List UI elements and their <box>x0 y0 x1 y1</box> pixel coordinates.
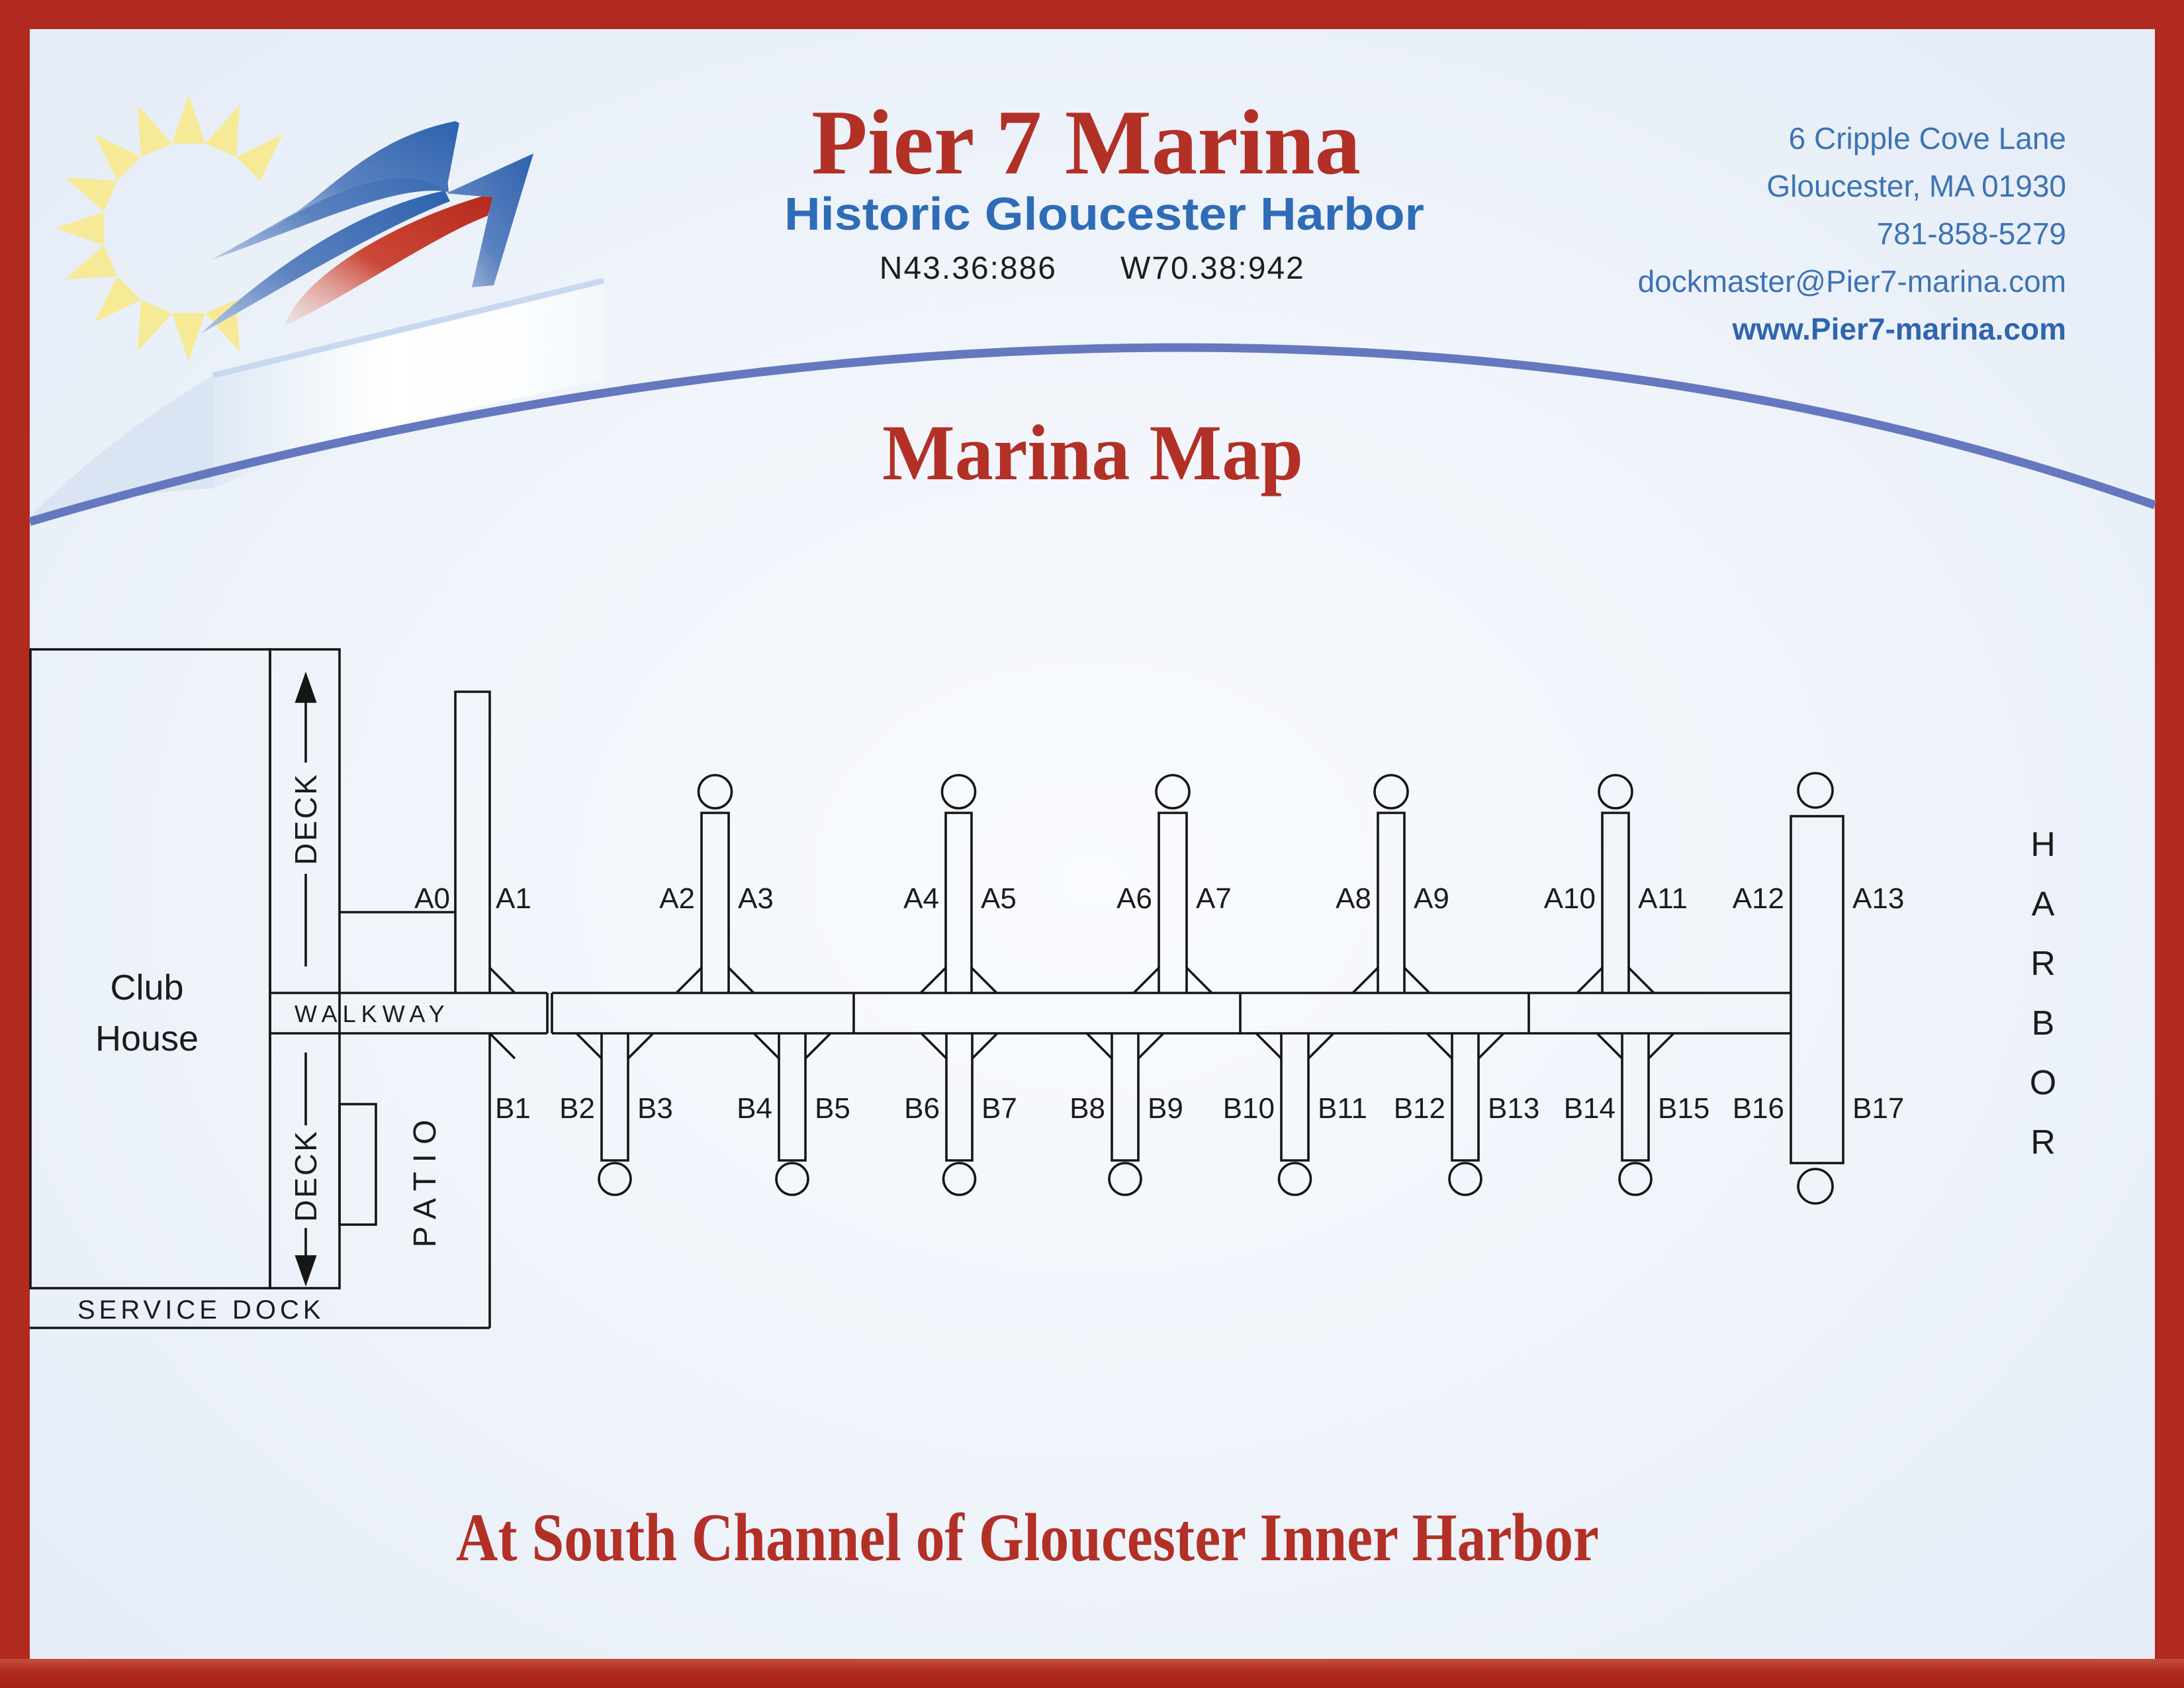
svg-text:Pier 7 Marina: Pier 7 Marina <box>811 91 1361 194</box>
svg-text:B4: B4 <box>737 1092 772 1125</box>
svg-text:www.Pier7-marina.com: www.Pier7-marina.com <box>1732 312 2066 346</box>
svg-text:A10: A10 <box>1544 882 1596 915</box>
svg-text:WALKWAY: WALKWAY <box>295 1000 450 1027</box>
svg-text:A7: A7 <box>1196 882 1232 915</box>
svg-text:B9: B9 <box>1148 1092 1183 1125</box>
svg-text:A12: A12 <box>1733 882 1784 915</box>
svg-text:R: R <box>2030 945 2056 983</box>
svg-text:PATIO: PATIO <box>408 1111 443 1248</box>
svg-text:A2: A2 <box>659 882 695 915</box>
svg-text:B15: B15 <box>1658 1092 1709 1125</box>
svg-text:B17: B17 <box>1852 1092 1904 1125</box>
svg-text:B6: B6 <box>904 1092 940 1125</box>
svg-text:A4: A4 <box>903 882 939 915</box>
svg-text:A3: A3 <box>738 882 774 915</box>
svg-text:A: A <box>2032 885 2055 923</box>
svg-text:A0: A0 <box>414 882 450 915</box>
svg-text:A1: A1 <box>496 882 531 915</box>
svg-text:B8: B8 <box>1069 1092 1105 1125</box>
svg-text:B16: B16 <box>1733 1092 1784 1125</box>
svg-text:DECK: DECK <box>289 1129 323 1222</box>
svg-text:6 Cripple Cove Lane: 6 Cripple Cove Lane <box>1789 121 2066 156</box>
svg-text:A8: A8 <box>1336 882 1371 915</box>
svg-text:Club: Club <box>110 968 183 1008</box>
svg-text:B: B <box>2032 1004 2055 1043</box>
svg-text:dockmaster@Pier7-marina.com: dockmaster@Pier7-marina.com <box>1638 264 2066 299</box>
svg-text:B2: B2 <box>559 1092 595 1125</box>
svg-text:SERVICE DOCK: SERVICE DOCK <box>77 1295 325 1325</box>
svg-text:A9: A9 <box>1414 882 1449 915</box>
svg-text:H: H <box>2030 825 2056 864</box>
svg-text:House: House <box>95 1019 199 1058</box>
svg-text:A5: A5 <box>981 882 1017 915</box>
svg-text:R: R <box>2030 1123 2056 1162</box>
svg-text:A6: A6 <box>1116 882 1152 915</box>
svg-text:W70.38:942: W70.38:942 <box>1120 251 1305 286</box>
svg-text:B14: B14 <box>1564 1092 1615 1125</box>
svg-text:DECK: DECK <box>289 773 323 865</box>
svg-text:O: O <box>2030 1064 2056 1102</box>
svg-text:At South Channel of Gloucester: At South Channel of Gloucester Inner Har… <box>456 1500 1599 1575</box>
svg-text:B10: B10 <box>1223 1092 1275 1125</box>
svg-text:781-858-5279: 781-858-5279 <box>1877 216 2066 251</box>
svg-text:Gloucester, MA 01930: Gloucester, MA 01930 <box>1766 169 2066 203</box>
svg-text:B5: B5 <box>815 1092 850 1125</box>
svg-text:B3: B3 <box>637 1092 673 1125</box>
svg-text:Historic Gloucester Harbor: Historic Gloucester Harbor <box>784 188 1424 240</box>
svg-text:N43.36:886: N43.36:886 <box>880 251 1057 286</box>
svg-text:B7: B7 <box>981 1092 1017 1125</box>
svg-text:Marina Map: Marina Map <box>882 408 1303 496</box>
svg-text:B12: B12 <box>1394 1092 1445 1125</box>
svg-text:B11: B11 <box>1318 1092 1367 1125</box>
svg-text:A13: A13 <box>1852 882 1904 915</box>
svg-text:A11: A11 <box>1638 882 1688 915</box>
svg-text:B1: B1 <box>495 1092 531 1125</box>
svg-text:B13: B13 <box>1488 1092 1539 1125</box>
